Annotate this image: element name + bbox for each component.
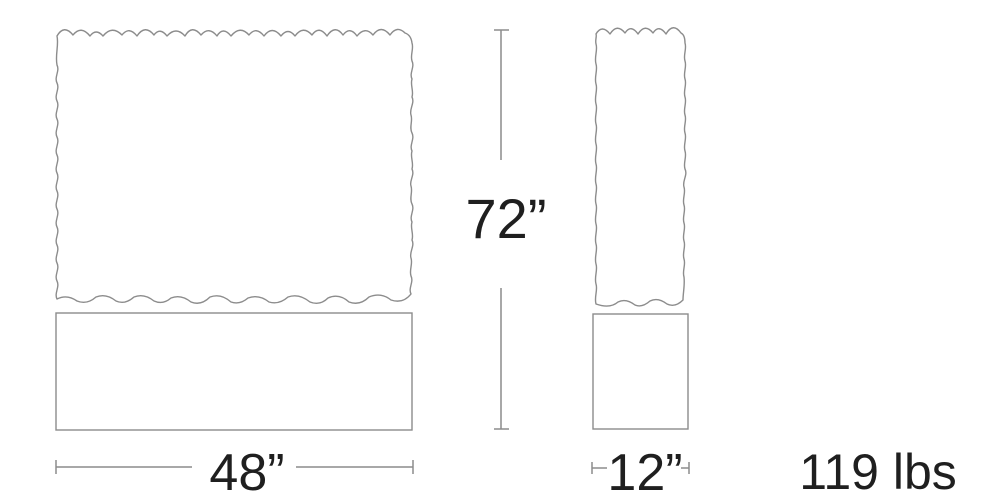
front-panel-foliage-outline	[56, 29, 413, 303]
width-dimension: 48”	[56, 444, 413, 500]
height-dimension: 72”	[466, 30, 547, 429]
depth-dimension: 12”	[592, 444, 689, 500]
dimension-drawing-canvas: 72” 48” 12” 119 lbs	[0, 0, 1000, 500]
side-view	[593, 28, 688, 429]
front-view	[56, 29, 413, 430]
height-label: 72”	[466, 187, 547, 250]
front-planter-base-outline	[56, 313, 412, 430]
product-dimension-diagram: 72” 48” 12” 119 lbs	[0, 0, 1000, 500]
depth-label: 12”	[607, 444, 682, 500]
side-panel-foliage-outline	[595, 28, 685, 306]
weight-label: 119 lbs	[799, 444, 957, 500]
side-planter-base-outline	[593, 314, 688, 429]
width-label: 48”	[209, 444, 284, 500]
